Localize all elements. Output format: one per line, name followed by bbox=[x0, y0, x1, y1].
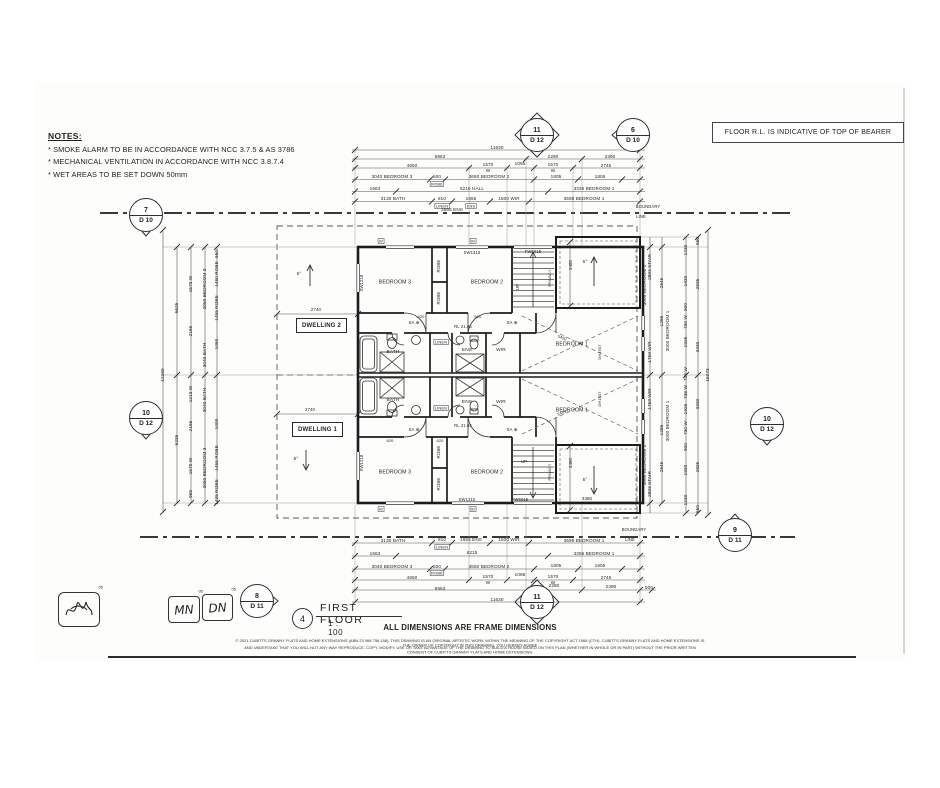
boundary-label: BOUNDARY bbox=[622, 528, 647, 532]
dimension-label: 600 bbox=[433, 175, 441, 180]
dimension-label: 3330 bbox=[696, 399, 701, 410]
dimension-label: 1805 bbox=[551, 175, 562, 180]
window-label: SW1218 bbox=[360, 455, 364, 472]
stamp-tag: 05 bbox=[199, 589, 203, 594]
dimension-label: 500 bbox=[645, 586, 653, 591]
dimension-label: 600 bbox=[433, 565, 441, 570]
room-label-bedroom2: BEDROOM 2 bbox=[471, 469, 503, 474]
dimension-label: 3650 BEDROOM 2 bbox=[469, 175, 510, 180]
dimension-label: 3130 BATH bbox=[381, 539, 405, 544]
title-underline bbox=[316, 616, 402, 617]
dimension-label: 1095 bbox=[515, 573, 526, 578]
dimension-label: 1655 ENS bbox=[460, 538, 482, 543]
dimension-label: 1230 bbox=[684, 245, 689, 256]
section-marker-8-d11: 8D 11 bbox=[240, 584, 274, 618]
dimension-label: 2555 ENS bbox=[441, 208, 463, 213]
dimension-label: 4650 bbox=[407, 164, 418, 169]
stair-up-label: UP bbox=[516, 284, 520, 290]
dimension-label: 1435 ROBE bbox=[215, 479, 220, 505]
smoke-alarm-symbol: SA ⊕ bbox=[507, 321, 518, 325]
dimension-lines bbox=[163, 150, 708, 602]
dimension-label: 3000 BEDROOM 1 bbox=[666, 311, 671, 352]
section-marker-10-d12-right: 10D 12 bbox=[750, 407, 784, 441]
dimension-label: RL 21.65 bbox=[454, 325, 472, 329]
dimension-label: 2835 bbox=[696, 279, 701, 290]
dimension-label: 1213 W bbox=[189, 386, 194, 403]
dimension-label: 3000 BEDROOM 1 bbox=[666, 401, 671, 442]
dimension-label: 1600 WIR bbox=[498, 538, 519, 543]
dimension-label: 1230 bbox=[684, 495, 689, 506]
dimension-label: W bbox=[486, 581, 490, 586]
dimension-label: 2165 bbox=[189, 326, 194, 337]
dimension-label: 1930 bbox=[684, 276, 689, 287]
dimension-label: 1759 WIR bbox=[648, 341, 653, 362]
room-label-linen: LINEN bbox=[434, 339, 449, 345]
room-label-robe: ROBE bbox=[437, 446, 441, 459]
dimension-label: W bbox=[486, 169, 490, 174]
room-label-bedroom3: BEDROOM 3 bbox=[379, 469, 411, 474]
smoke-alarm-symbol: SA ⊕ bbox=[507, 428, 518, 432]
dimension-label: 6963 bbox=[435, 155, 446, 160]
section-marker-9-d11: 9D 11 bbox=[718, 518, 752, 552]
room-label-linen: LINEN bbox=[434, 405, 449, 411]
dimension-label: 738 W bbox=[684, 385, 689, 399]
dimension-label: 1060 bbox=[215, 339, 220, 350]
dimension-label: 2740 bbox=[311, 308, 321, 312]
dimension-label: 6625 bbox=[175, 303, 180, 314]
dimension-label: 1455 ROBE bbox=[215, 295, 220, 321]
dimension-label: 900 bbox=[684, 303, 689, 311]
stair-up-label: UP bbox=[521, 460, 527, 464]
dimension-label: 2390 bbox=[606, 585, 617, 590]
smoke-alarm-symbol: SA ⊕ bbox=[409, 428, 420, 432]
dimension-label: 3330 bbox=[696, 342, 701, 353]
dimension-label: 900 bbox=[684, 443, 689, 451]
dimension-label: 3480 bbox=[569, 260, 573, 270]
dimension-label: 1570 bbox=[548, 163, 559, 168]
dimension-label: 3380 bbox=[582, 497, 592, 501]
dimension-label: 3040 BEDROOM 3 bbox=[372, 565, 413, 570]
dimension-label: 1930 bbox=[684, 465, 689, 476]
dimension-label: RL 21.65 bbox=[454, 424, 472, 428]
frame-dimensions-note: ALL DIMENSIONS ARE FRAME DIMENSIONS bbox=[0, 623, 940, 632]
window-label: FW6015 bbox=[525, 250, 542, 254]
dimension-label: 15273 bbox=[706, 368, 711, 381]
dimension-label: 3335 BEDROOM 1 bbox=[574, 187, 615, 192]
dimension-label: 1555 bbox=[466, 197, 477, 202]
dimension-label: 810 bbox=[438, 538, 446, 543]
dimension-label: 810 bbox=[438, 197, 446, 202]
dimension-label: ROBE bbox=[430, 570, 444, 576]
scan-edge-line bbox=[108, 656, 856, 658]
dimension-label: 730 W bbox=[684, 421, 689, 435]
section-marker-6-d10: 6D 10 bbox=[616, 118, 650, 152]
dimension-label: 1926 bbox=[684, 337, 689, 348]
room-label-wir: WIR bbox=[496, 400, 506, 405]
dimension-label: 6215 HALL bbox=[460, 187, 484, 192]
dimension-label: 3480 bbox=[569, 458, 573, 468]
dimension-label: 3050 BEDROOM 3 bbox=[203, 448, 208, 489]
dimension-label: 560 bbox=[215, 250, 220, 258]
dimension-label: 730 W bbox=[684, 315, 689, 329]
dimension-label: 1663 bbox=[370, 187, 381, 192]
dimension-label: 2845 bbox=[660, 462, 665, 473]
extension-lines bbox=[163, 150, 708, 602]
room-label-bedroom2: BEDROOM 2 bbox=[471, 279, 503, 284]
window-label: DH1907 bbox=[598, 391, 602, 406]
roof-slope-label: 5° bbox=[583, 478, 588, 483]
dimension-label: PRIVACY bbox=[548, 269, 552, 286]
dimension-label: 1570 bbox=[483, 575, 494, 580]
dimension-label: 1570 W bbox=[189, 458, 194, 475]
dimension-label: 2740 bbox=[305, 408, 315, 412]
window-tag: W bbox=[470, 238, 476, 244]
door-swings bbox=[392, 313, 556, 437]
dimension-label: 1286 bbox=[660, 316, 665, 327]
dimension-label: 1455 ROBE bbox=[215, 445, 220, 471]
dimension-label: 4650 bbox=[407, 576, 418, 581]
smoke-alarm-symbol: SA ⊕ bbox=[409, 321, 420, 325]
dimension-label: 1805 bbox=[595, 175, 606, 180]
dimension-label: 2165 bbox=[189, 421, 194, 432]
dimension-label: 11630 bbox=[490, 598, 503, 603]
boundary-label: LINE bbox=[636, 215, 646, 219]
window-tag: W bbox=[378, 238, 384, 244]
dimension-label: 1480 ROBE bbox=[215, 261, 220, 287]
stamp-tag: 05 bbox=[99, 585, 103, 590]
dimension-label: 2835 bbox=[696, 462, 701, 473]
window-tag: W bbox=[378, 506, 384, 512]
dimension-label: 3040 BEDROOM 3 bbox=[372, 175, 413, 180]
section-marker-11-d12: 11D 12 bbox=[520, 118, 554, 152]
dimension-label: ROBE bbox=[430, 181, 444, 187]
dimension-label: 2745 bbox=[601, 576, 612, 581]
dimension-label: 1926 bbox=[684, 404, 689, 415]
stamp-tag: 05 bbox=[232, 587, 236, 592]
dimension-label: 620 bbox=[418, 315, 425, 319]
dimension-label: 1573 W bbox=[189, 276, 194, 293]
boundary-label: BOUNDARY bbox=[636, 205, 661, 209]
dimension-label: ENS bbox=[465, 203, 476, 209]
room-label-robe: ROBE bbox=[437, 478, 441, 491]
dimension-label: 1805 bbox=[595, 564, 606, 569]
dimension-label: 3695 BEDROOM 1 bbox=[564, 197, 605, 202]
dimension-label: 620 bbox=[437, 439, 444, 443]
dimension-label: 3650 BEDROOM 2 bbox=[469, 565, 510, 570]
room-label-ens: ENS bbox=[462, 400, 472, 405]
room-label-bedroom1: BEDROOM 1 bbox=[556, 341, 588, 346]
room-label-robe: ROBE bbox=[437, 292, 441, 305]
dimension-label: 3395 BEDROOM 1 bbox=[574, 552, 615, 557]
dimension-label: 2893 STAIR bbox=[648, 471, 653, 497]
dimension-label: 2745 bbox=[601, 164, 612, 169]
dimension-label: 1570 bbox=[483, 163, 494, 168]
roof-slope-arrows bbox=[303, 257, 597, 494]
section-marker-7-d10: 7D 10 bbox=[129, 198, 163, 232]
initials-mn: MN bbox=[168, 596, 200, 623]
dimension-label: 968 bbox=[189, 490, 194, 498]
dimension-label: 3040 BATH bbox=[203, 388, 208, 412]
window-label: SW1215 bbox=[459, 498, 476, 502]
dimension-label: 6215 bbox=[467, 551, 478, 556]
boundary-label: LINE bbox=[625, 538, 635, 542]
dimension-label: 820 bbox=[387, 439, 394, 443]
section-marker-11-d12-bottom: 11D 12 bbox=[520, 585, 554, 619]
roof-slope-label: 5° bbox=[583, 260, 588, 265]
dimension-label: 3050 BEDROOM 3 bbox=[203, 269, 208, 310]
dimension-label: 2893 STAIR bbox=[648, 254, 653, 280]
initials-dn: DN bbox=[202, 594, 233, 621]
dimension-label: 3000 BEDROOM 2 bbox=[643, 265, 648, 306]
dimension-label: 1759 WIR bbox=[648, 388, 653, 409]
roof-slope-label: 5° bbox=[294, 457, 299, 462]
dimension-label: LINEN bbox=[435, 544, 450, 550]
room-label-wir: WIR bbox=[496, 348, 506, 353]
window-label: DH1907 bbox=[598, 344, 602, 359]
dimension-label: 650 bbox=[696, 505, 701, 513]
room-label-bedroom3: BEDROOM 3 bbox=[379, 279, 411, 284]
section-marker-10-d12-left: 10D 12 bbox=[129, 401, 163, 435]
room-label-ens: ENS bbox=[462, 348, 472, 353]
dimension-label: 6963 bbox=[435, 587, 446, 592]
dimension-label: 12369 bbox=[161, 368, 166, 381]
signature-stamp: 05 bbox=[58, 592, 100, 627]
roof-slope-label: 5° bbox=[297, 272, 302, 277]
dimension-label: W bbox=[551, 169, 555, 174]
dimension-label: 1095 bbox=[515, 162, 526, 167]
dimension-label: 1286 bbox=[660, 425, 665, 436]
dimension-label: 1663 bbox=[370, 552, 381, 557]
floor-plan-drawing bbox=[0, 0, 940, 788]
copyright-line: AND UNDERTAKE THAT YOU WILL NOT ANY WAY … bbox=[235, 646, 705, 655]
dimension-label: 1805 bbox=[551, 564, 562, 569]
window-label: FW6015 bbox=[512, 498, 529, 502]
dimension-label: 650 bbox=[696, 237, 701, 245]
scanned-floor-plan-page: NOTES: * SMOKE ALARM TO BE IN ACCORDANCE… bbox=[0, 0, 940, 788]
dimension-label: 1600 WIR bbox=[498, 197, 519, 202]
dwelling-1-label: DWELLING 1 bbox=[292, 422, 343, 437]
dimension-label: 1000 bbox=[215, 419, 220, 430]
dimension-label: 2845 bbox=[660, 278, 665, 289]
room-label-robe: ROBE bbox=[437, 260, 441, 273]
room-label-bath: BATH bbox=[387, 350, 400, 355]
dimension-label: 716 W bbox=[684, 367, 689, 381]
window-tag: W bbox=[470, 506, 476, 512]
dimension-label: 11630 bbox=[490, 146, 503, 151]
signature-icon bbox=[59, 593, 99, 626]
dwelling-2-label: DWELLING 2 bbox=[296, 318, 347, 333]
room-label-bath: BATH bbox=[387, 398, 400, 403]
window-label: SW1218 bbox=[360, 275, 364, 292]
dimension-label: 3040 BATH bbox=[203, 343, 208, 367]
dimension-label: 3130 BATH bbox=[381, 197, 405, 202]
initials-stamp-mn: 05 MN bbox=[168, 596, 200, 623]
dimension-label: 820 bbox=[475, 315, 482, 319]
dimension-label: 3695 BEDROOM 1 bbox=[564, 539, 605, 544]
window-label: SW1315 bbox=[464, 251, 481, 255]
dimension-label: 6235 bbox=[175, 435, 180, 446]
dimension-label: PRIVACY bbox=[548, 463, 552, 480]
initials-stamp-dn: 05 DN bbox=[202, 594, 233, 621]
ceiling-rake-diagonals bbox=[522, 316, 638, 434]
